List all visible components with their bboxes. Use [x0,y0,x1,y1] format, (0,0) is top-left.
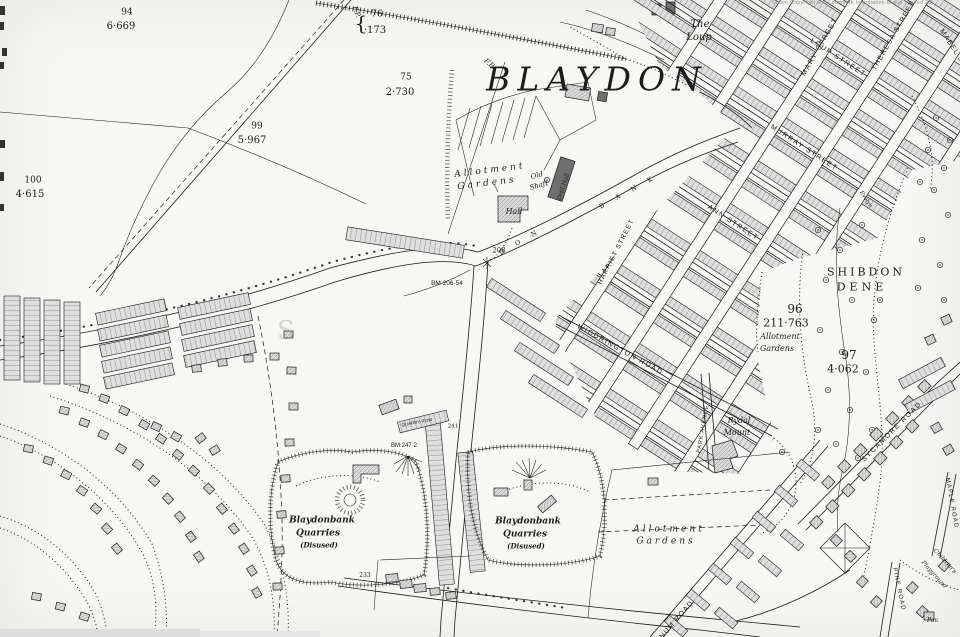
quarry-label-west: Quarries [296,530,340,539]
parcel-97-number: 97 [841,349,856,361]
parcel-75-number: 75 [400,74,411,83]
parcel-96-area: 211·763 [763,318,809,329]
parcel-99-number: 99 [251,123,262,132]
shibdon-dene-label: DENE [837,282,888,293]
quarry-label-east: Blaydonbank [495,518,561,527]
parcel-75-area: 2·730 [386,88,415,98]
spot-height-241: 241 [448,424,459,430]
parcel-94-area: 6·669 [107,22,136,32]
pavilion-label: Pav. [927,618,939,624]
parcel-100-area: 4·615 [16,190,45,200]
allotment-gardens-label: Allotment [760,333,800,341]
the-loup-label: Loup [686,33,712,43]
parcel-99-area: 5·967 [238,136,267,146]
quarry-label-west: Blaydonbank [289,517,355,526]
bench-mark-206: BM 206·54 [431,281,463,288]
quarry-label-west: (Disused) [300,542,338,549]
hall-label: Hall [506,208,523,216]
the-loup-label: The [690,20,709,30]
parcel-100-number: 100 [24,177,41,186]
quarry-label-east: (Disused) [507,543,545,550]
quarry-label-east: Quarries [503,531,547,540]
os-map[interactable]: Crown Copyright and Landmark Information… [0,0,960,637]
settlement-title: BLAYDON [486,63,708,96]
rydal-mount-label: Mount [724,429,751,437]
allotment-gardens-label: Gardens [760,345,794,353]
parcel-97-area: 4·062 [827,364,859,375]
shibdon-dene-label: SHIBDON [827,267,905,278]
bench-mark-247: BM 247·2 [391,443,417,449]
parcel-96-number: 96 [787,303,802,315]
allotment-gardens-label: Gardens [636,538,695,547]
allotment-gardens-label: Allotment [633,526,705,535]
parcel-94-number: 94 [121,9,132,18]
spot-height-233: 233 [359,573,370,579]
scan-watermark-artifact: S [277,318,295,344]
map-linework [0,0,960,637]
rydal-mount-label: Rydal [728,417,751,425]
parcel-76-number: 76 [371,11,382,20]
